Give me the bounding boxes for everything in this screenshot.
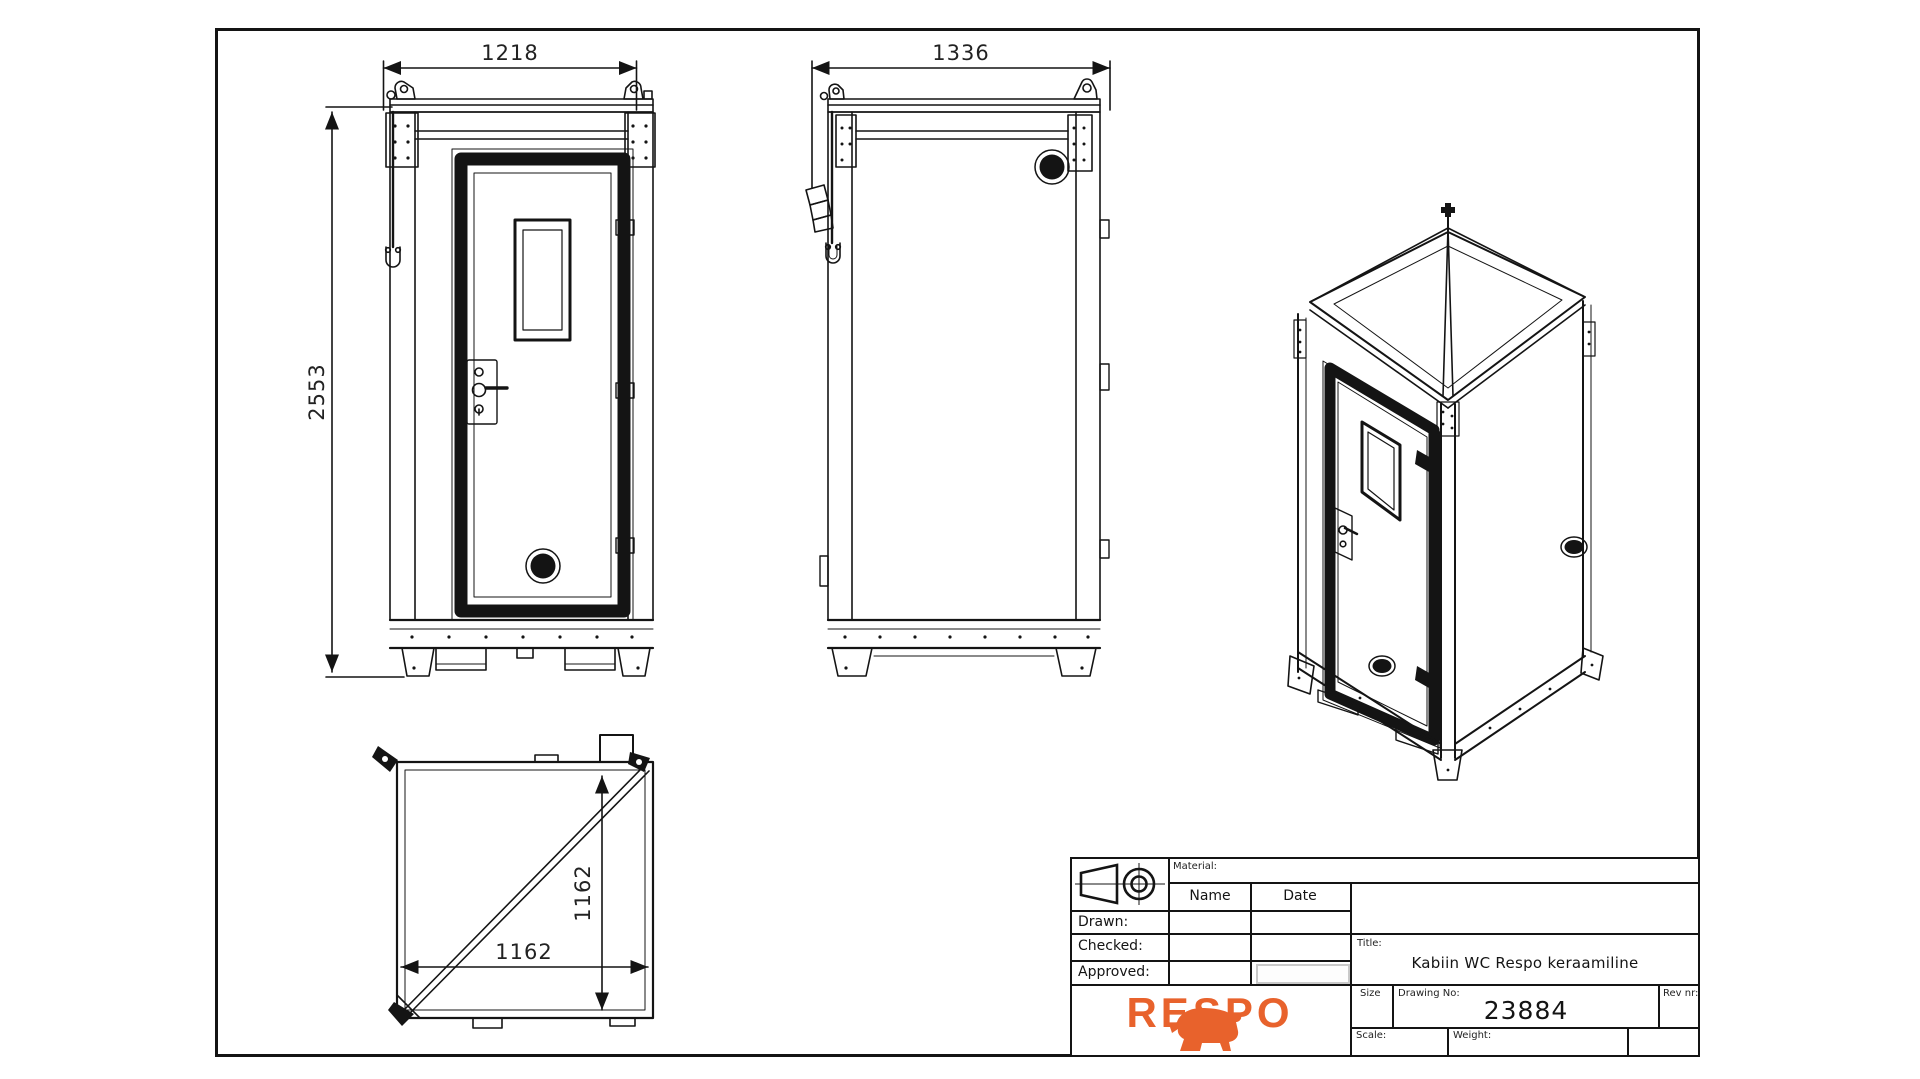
side-width-dimension: 1336 bbox=[932, 41, 989, 65]
drawing-no-value: 23884 bbox=[1394, 992, 1658, 1028]
checked-label: Checked: bbox=[1078, 938, 1143, 954]
title-block: Material: Name Date Drawn: Checked: Appr… bbox=[1070, 857, 1700, 1057]
front-height-dimension: 2553 bbox=[305, 363, 329, 420]
drawing-sheet: 1218 2553 bbox=[0, 0, 1920, 1079]
front-width-dimension: 1218 bbox=[481, 41, 538, 65]
approved-date-field[interactable] bbox=[1256, 964, 1350, 984]
top-depth-dimension: 1162 bbox=[571, 864, 595, 921]
top-width-dimension: 1162 bbox=[495, 940, 552, 964]
top-view: 1162 1162 bbox=[372, 735, 653, 1028]
date-header: Date bbox=[1250, 882, 1350, 910]
isometric-view bbox=[1288, 203, 1603, 780]
drawing-title: Kabiin WC Respo keraamiline bbox=[1352, 943, 1698, 983]
scale-label: Scale: bbox=[1356, 1030, 1386, 1041]
weight-label: Weight: bbox=[1453, 1030, 1491, 1041]
front-view: 1218 2553 bbox=[305, 41, 655, 677]
size-label: Size bbox=[1360, 988, 1381, 999]
material-label: Material: bbox=[1173, 861, 1217, 872]
drawn-label: Drawn: bbox=[1078, 914, 1128, 930]
approved-label: Approved: bbox=[1078, 964, 1150, 980]
side-view: 1336 bbox=[806, 41, 1110, 676]
name-header: Name bbox=[1168, 882, 1252, 910]
first-angle-projection-icon bbox=[1073, 861, 1167, 908]
rev-label: Rev nr: bbox=[1663, 988, 1698, 999]
respo-logo: RESPO bbox=[1080, 987, 1340, 1055]
